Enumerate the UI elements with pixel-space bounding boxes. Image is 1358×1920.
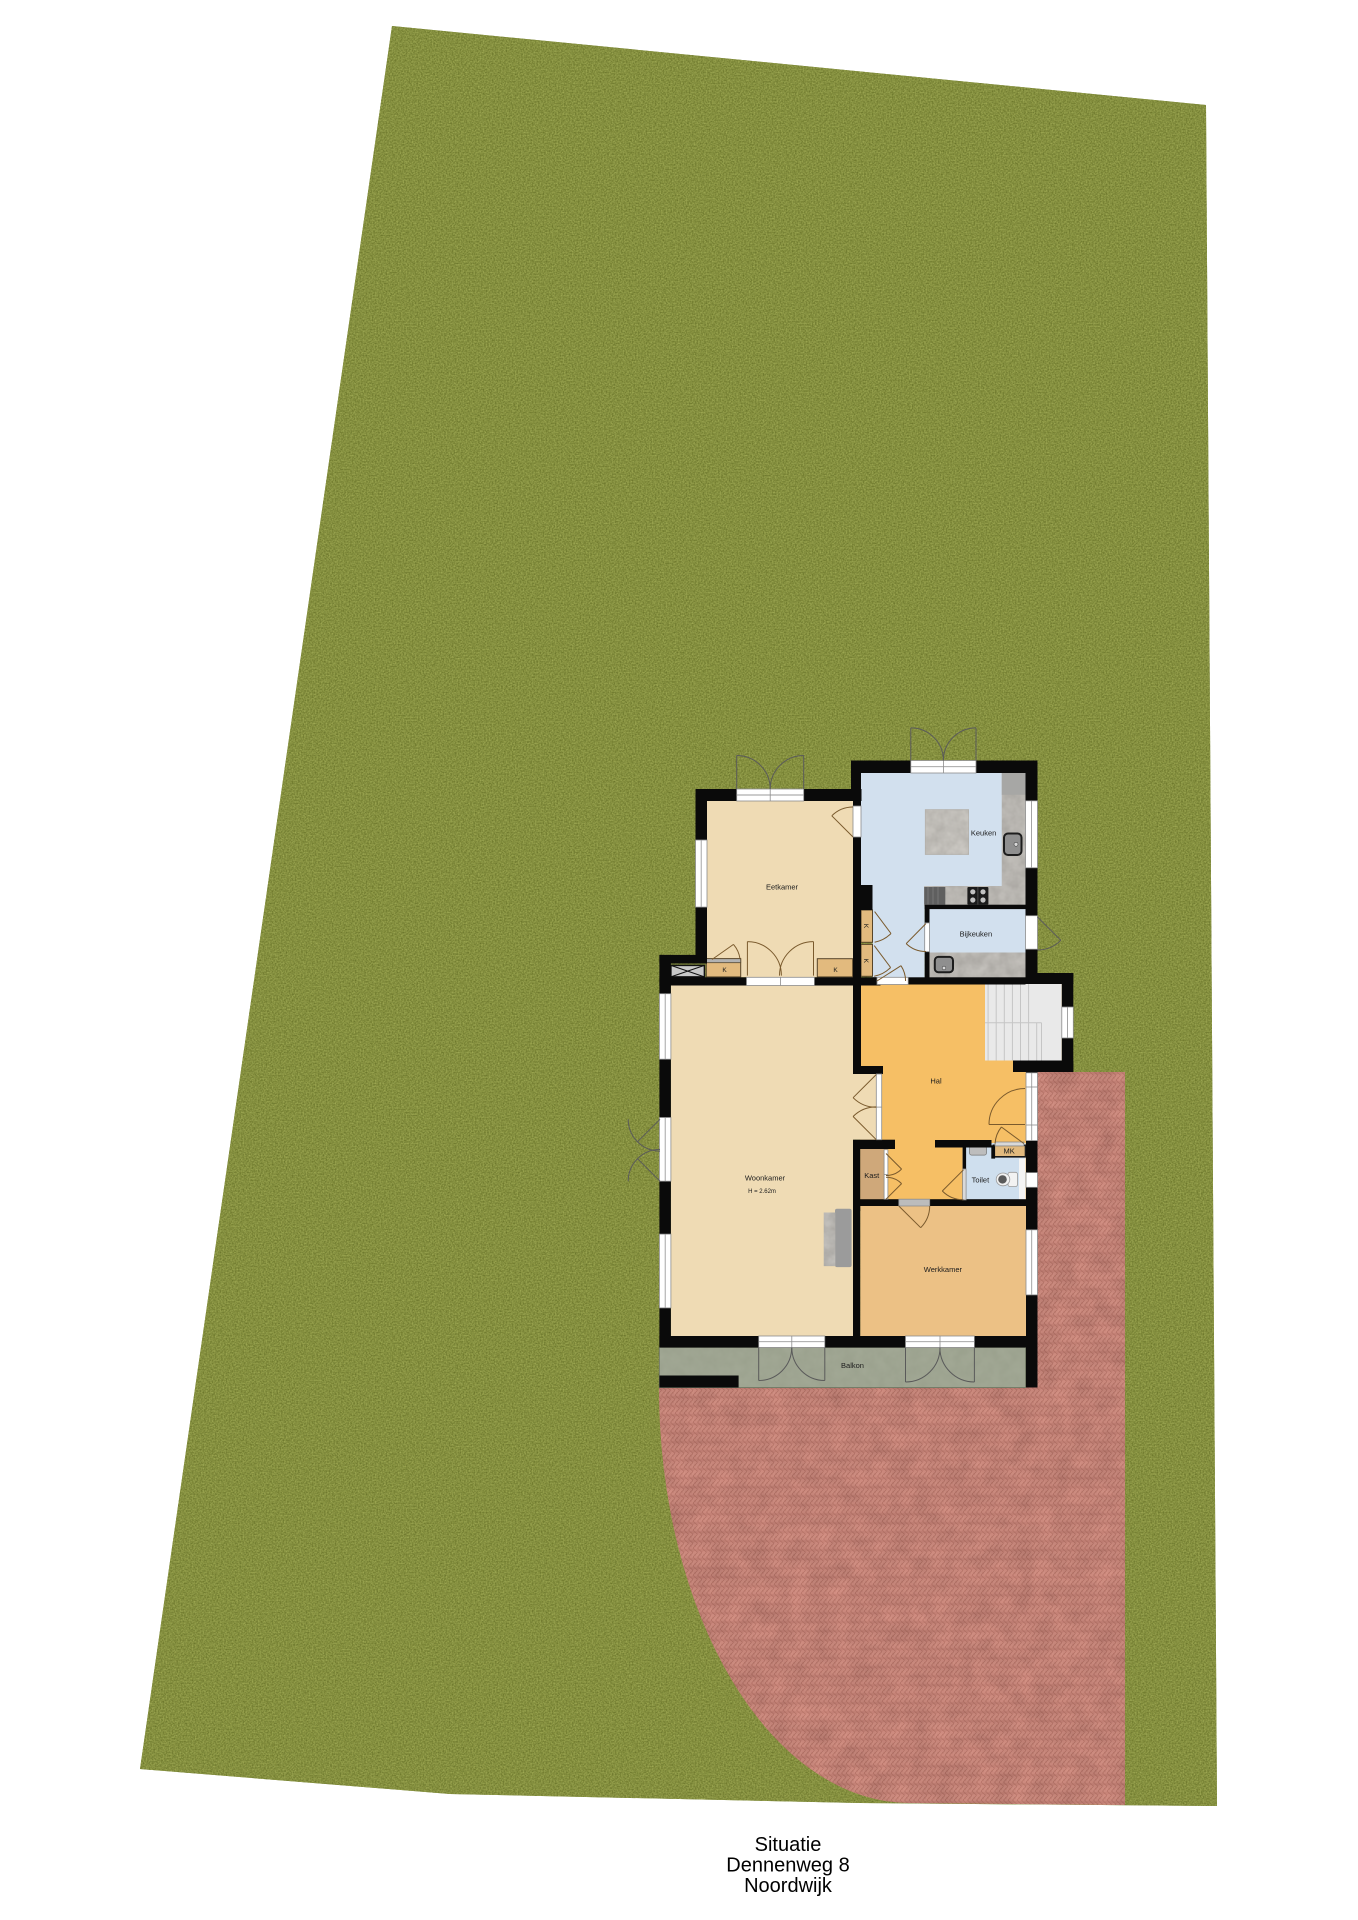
- svg-text:Toilet: Toilet: [972, 1176, 990, 1185]
- svg-text:Noordwijk: Noordwijk: [744, 1875, 833, 1897]
- svg-text:Werkkamer: Werkkamer: [924, 1265, 963, 1274]
- svg-text:K: K: [833, 967, 838, 974]
- svg-text:Balkon: Balkon: [841, 1361, 864, 1370]
- svg-text:Bijkeuken: Bijkeuken: [960, 929, 993, 938]
- svg-text:H = 2.62m: H = 2.62m: [748, 1189, 776, 1195]
- svg-text:K: K: [722, 967, 727, 974]
- svg-text:K: K: [862, 924, 869, 929]
- svg-text:Hal: Hal: [930, 1077, 942, 1086]
- svg-text:Kast: Kast: [864, 1171, 880, 1180]
- svg-text:K: K: [862, 959, 869, 964]
- svg-text:Situatie: Situatie: [755, 1834, 822, 1856]
- svg-text:MK: MK: [1003, 1147, 1014, 1156]
- svg-text:Eetkamer: Eetkamer: [766, 883, 799, 892]
- svg-text:Dennenweg 8: Dennenweg 8: [726, 1855, 849, 1877]
- svg-text:Woonkamer: Woonkamer: [745, 1174, 786, 1183]
- svg-text:Keuken: Keuken: [971, 829, 996, 838]
